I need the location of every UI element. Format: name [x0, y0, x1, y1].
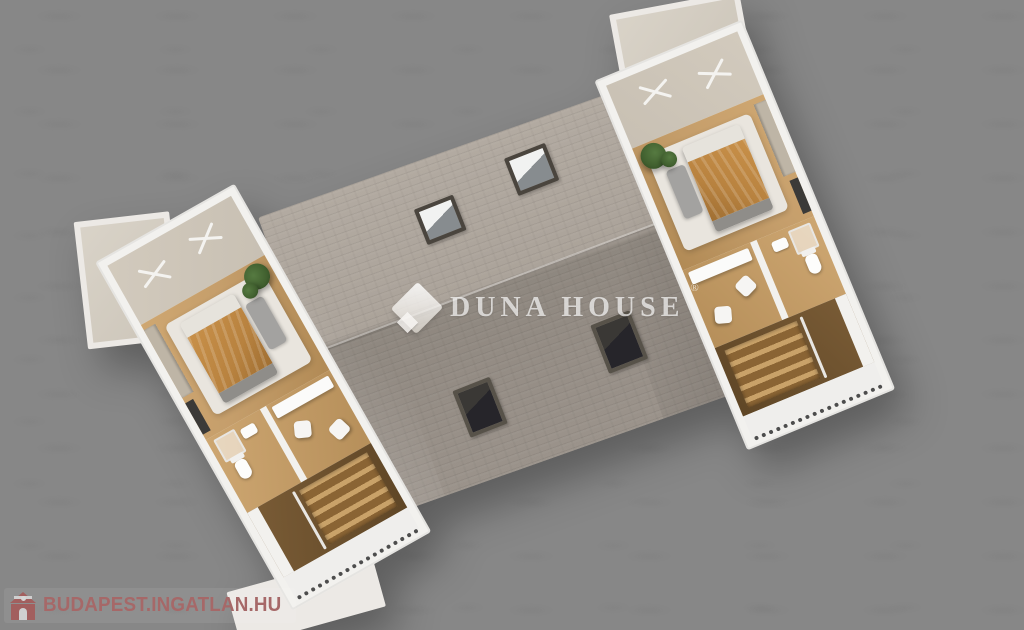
logo-diamond-large [391, 282, 443, 334]
skylight-window [414, 194, 467, 245]
sink [771, 237, 790, 253]
chair [327, 417, 351, 441]
lounge-chair [696, 57, 733, 91]
ingatlan-hu-brand-badge: BUDAPEST.INGATLAN.HU [4, 588, 296, 623]
house-icon-door [19, 608, 27, 620]
skylight-window [452, 377, 508, 438]
sink [239, 422, 258, 439]
watermark-brand-name: DUNA HOUSE [450, 294, 684, 322]
lounge-chair [137, 259, 173, 290]
toilet [804, 252, 824, 275]
toilet [233, 457, 254, 481]
chair [714, 306, 732, 324]
listing-image: DUNA HOUSE ® BUDAPEST.INGATLAN.HU [0, 0, 1024, 630]
chair [734, 274, 758, 298]
tv-unit [185, 399, 211, 435]
ingatlan-hu-house-icon [10, 592, 36, 620]
tv-unit [789, 177, 811, 214]
stair-wall [247, 507, 294, 577]
house-icon-window-dot [21, 596, 26, 601]
lounge-chair [638, 78, 673, 108]
portal-name-label: BUDAPEST.INGATLAN.HU [43, 594, 281, 617]
chair [293, 420, 312, 439]
lounge-chair [187, 221, 224, 256]
stair-wall [835, 294, 874, 367]
duna-house-diamond-logo-icon [394, 284, 440, 332]
registered-trademark-symbol: ® [690, 282, 698, 294]
skylight-window [504, 143, 560, 196]
duna-house-watermark: DUNA HOUSE ® [394, 284, 699, 332]
